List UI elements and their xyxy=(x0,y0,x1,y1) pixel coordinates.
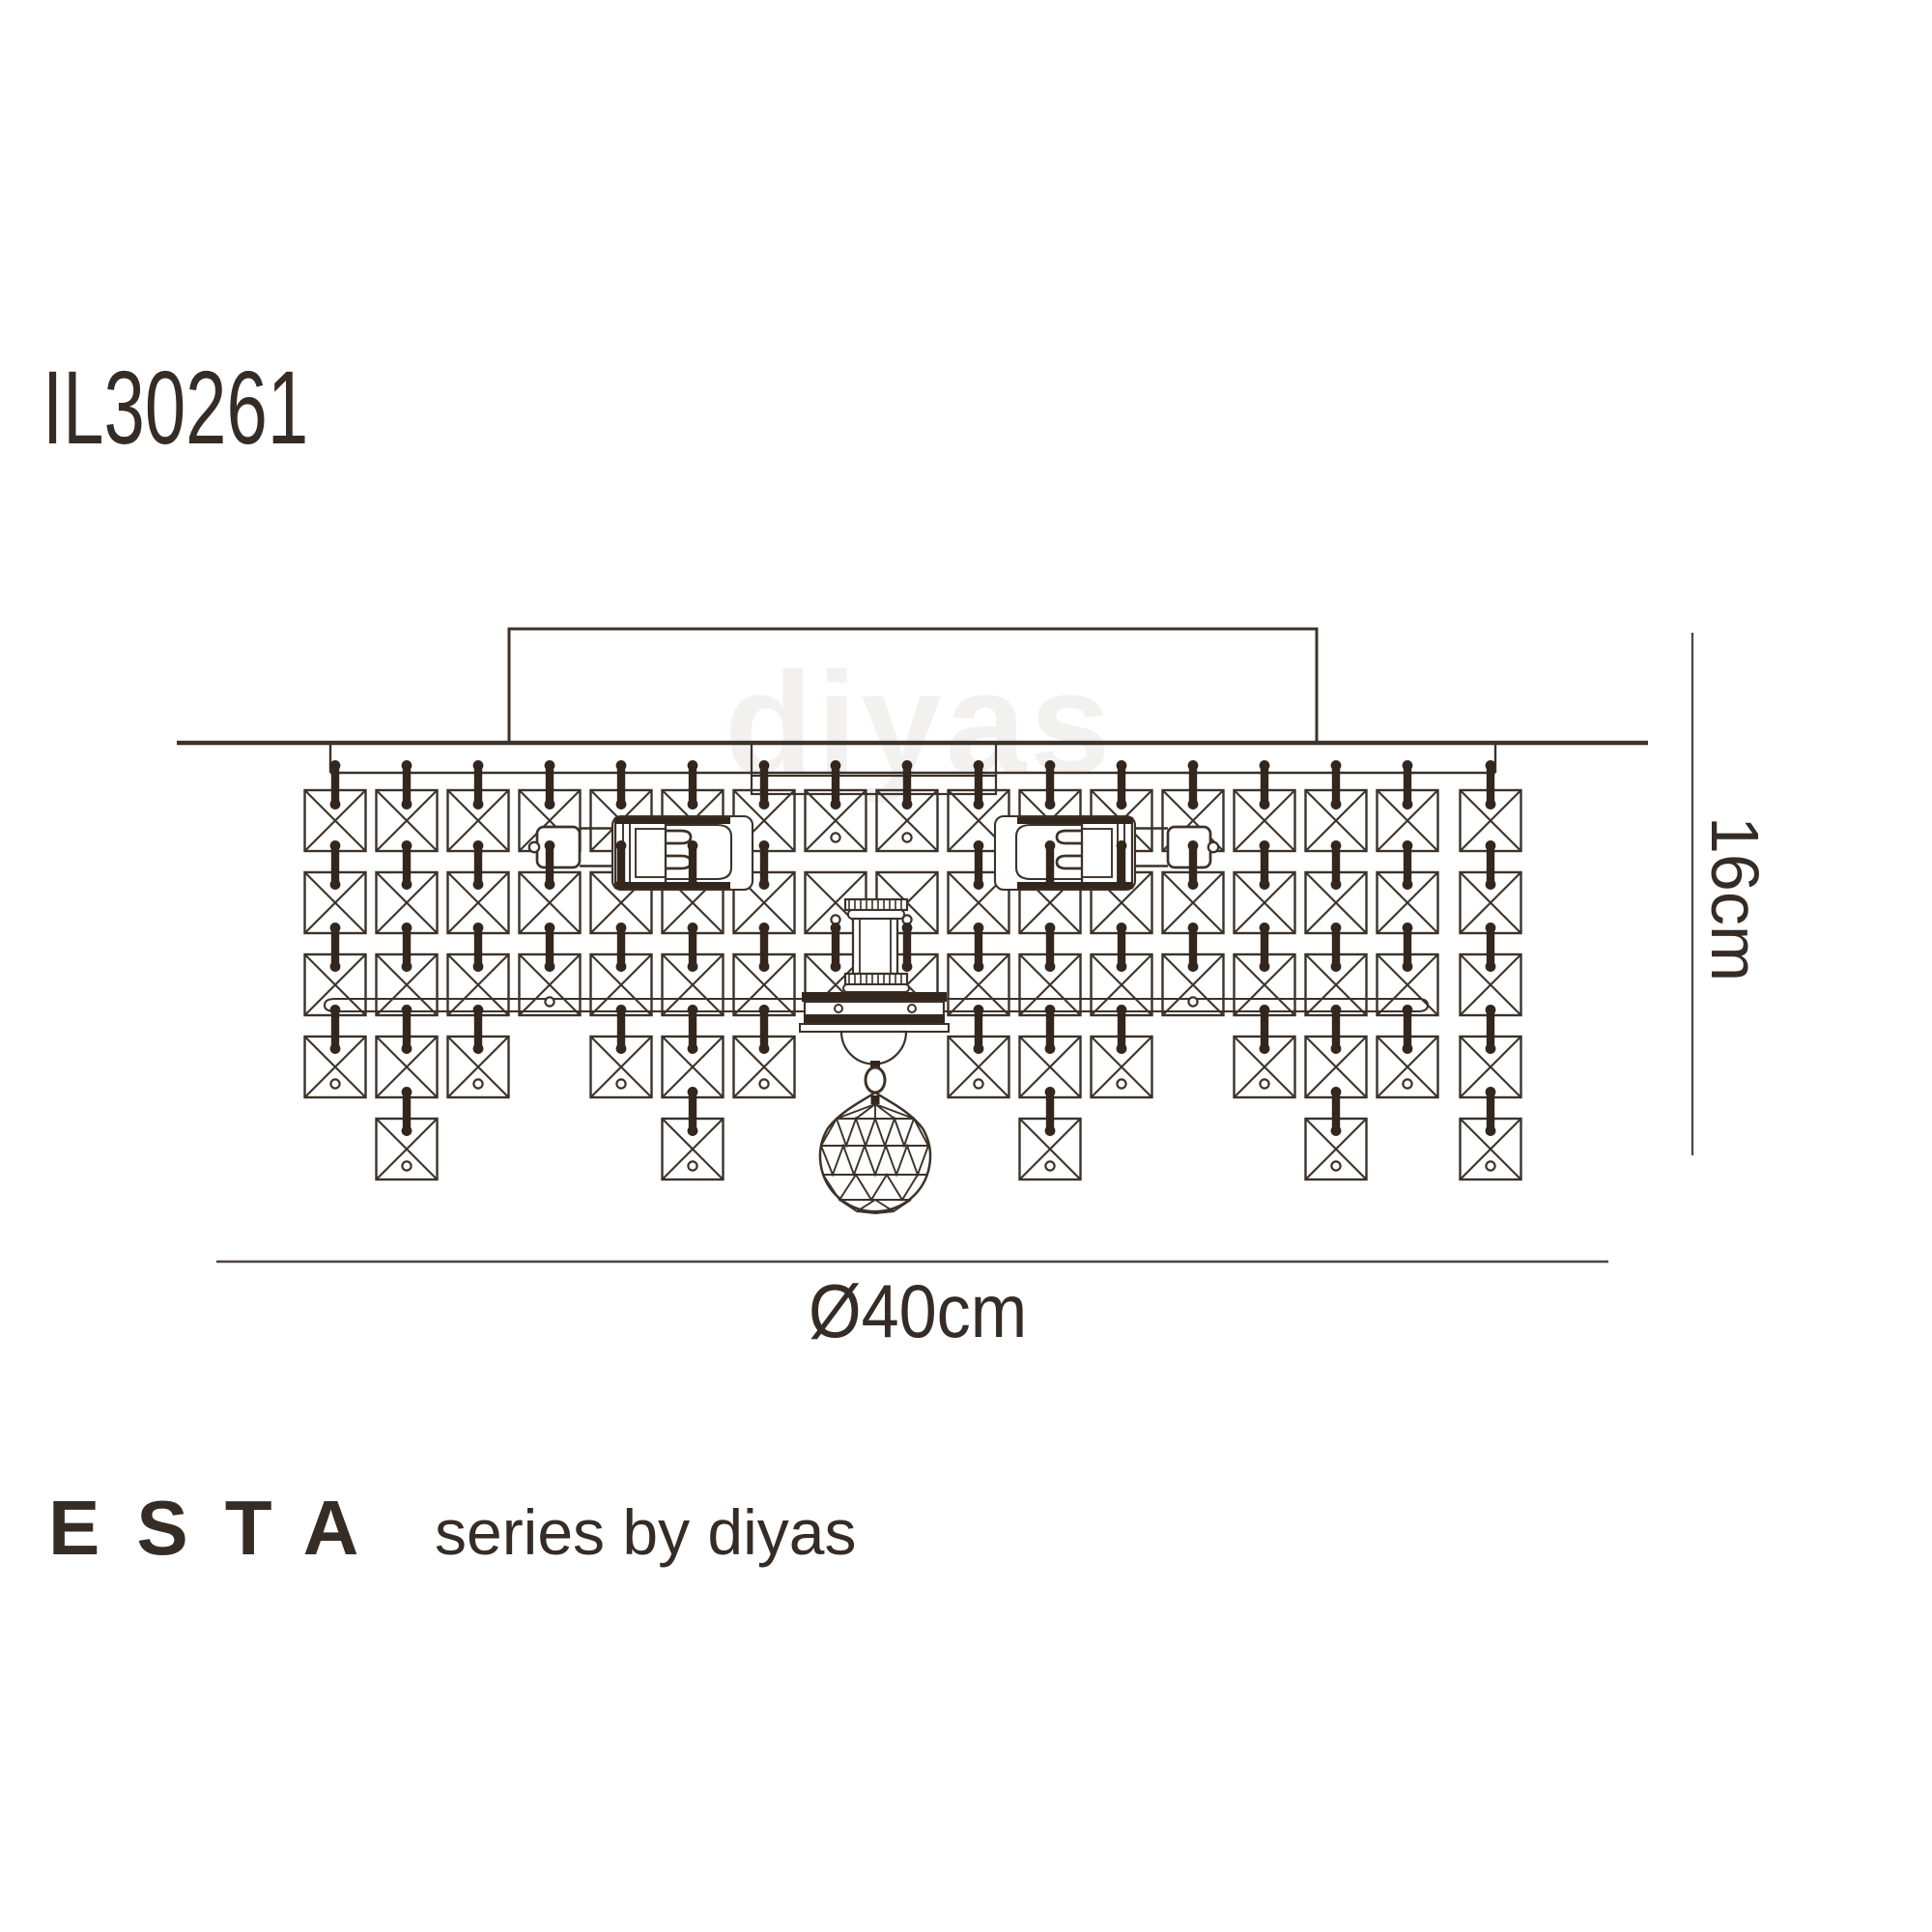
svg-text:diyas: diyas xyxy=(724,641,1115,804)
svg-text:16cm: 16cm xyxy=(1697,816,1773,981)
svg-text:Ø40cm: Ø40cm xyxy=(809,1269,1027,1353)
svg-text:series by diyas: series by diyas xyxy=(435,1496,857,1568)
svg-text:ESTA: ESTA xyxy=(48,1485,395,1571)
svg-text:IL30261: IL30261 xyxy=(43,349,308,466)
